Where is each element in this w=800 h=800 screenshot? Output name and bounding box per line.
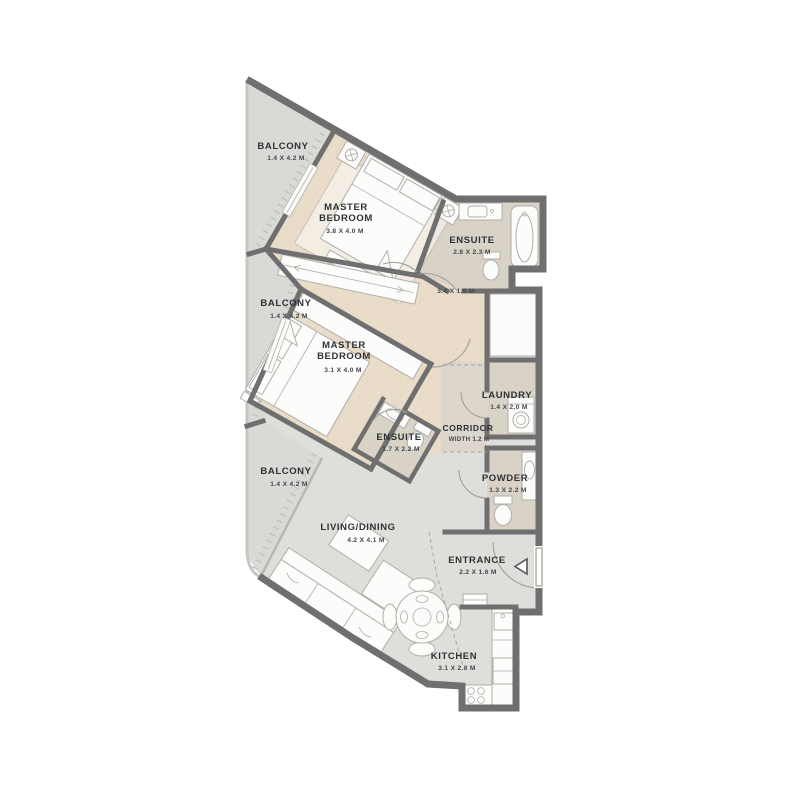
room-label-master-bedroom-2: MASTERBEDROOM bbox=[317, 340, 371, 362]
room-label-balcony-bottom: BALCONY bbox=[260, 466, 311, 477]
room-dims-balcony-top: 1.4 X 4.2 M bbox=[267, 155, 305, 162]
room-dims-ensuite-2: 1.7 X 2.2 M bbox=[382, 446, 420, 453]
room-label-balcony-middle: BALCONY bbox=[260, 298, 311, 309]
room-dims-living-dining: 4.2 X 4.1 M bbox=[347, 537, 385, 544]
stove bbox=[463, 685, 492, 707]
room-dims-kitchen: 3.1 X 2.8 M bbox=[438, 665, 476, 672]
floorplan-drawing: BALCONY 1.4 X 4.2 M MASTERBEDROOM 3.8 X … bbox=[0, 0, 800, 800]
room-label-ensuite-1: ENSUITE bbox=[449, 235, 494, 246]
hall-closet bbox=[490, 294, 536, 356]
room-dims-master-bedroom-1: 3.8 X 4.0 M bbox=[326, 228, 364, 235]
room-dims-powder: 1.3 X 2.2 M bbox=[489, 487, 527, 494]
room-label-living-dining: LIVING/DINING bbox=[320, 522, 395, 533]
room-label-powder: POWDER bbox=[482, 473, 528, 484]
room-label-balcony-top: BALCONY bbox=[257, 141, 308, 152]
room-dims-corridor: WIDTH 1.2 M bbox=[449, 436, 490, 443]
room-dims-entrance: 2.2 X 1.6 M bbox=[459, 569, 497, 576]
washer bbox=[508, 397, 534, 433]
kitchen-sink bbox=[494, 613, 513, 630]
room-label-master-bedroom-1: MASTERBEDROOM bbox=[319, 202, 373, 224]
room-dims-master-bedroom-2: 3.1 X 4.0 M bbox=[324, 367, 362, 374]
toilet bbox=[483, 260, 499, 280]
room-dims-laundry: 1.4 X 2.0 M bbox=[490, 404, 528, 411]
room-label-entrance: ENTRANCE bbox=[448, 555, 506, 566]
room-label-ensuite-2: ENSUITE bbox=[376, 432, 421, 443]
room-dims-balcony-bottom: 1.4 X 4.2 M bbox=[270, 481, 308, 488]
room-dims-hall: 3.4 X 1.9 M bbox=[437, 288, 475, 295]
room-label-corridor: CORRIDOR bbox=[442, 423, 493, 433]
room-label-laundry: LAUNDRY bbox=[482, 390, 532, 401]
room-dims-balcony-middle: 1.4 X 4.2 M bbox=[270, 313, 308, 320]
room-dims-ensuite-1: 2.8 X 2.3 M bbox=[453, 249, 491, 256]
floorplan-page: BALCONY 1.4 X 4.2 M MASTERBEDROOM 3.8 X … bbox=[0, 0, 800, 800]
room-label-kitchen: KITCHEN bbox=[431, 651, 477, 662]
